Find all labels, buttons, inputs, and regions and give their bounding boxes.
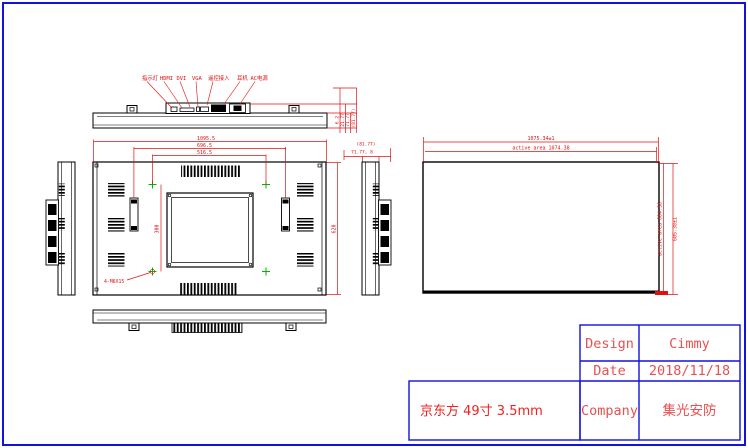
vent-slots [297,253,314,267]
company-value: 集光安防 [663,403,717,419]
top-view [93,103,327,128]
port-label-ac: AC电源 [251,74,269,82]
dim-active-width: active area 1074.38 [512,146,569,152]
mount-tab [289,106,299,114]
design-label: Design [585,336,634,352]
right-side-view [362,162,391,295]
depth-dim-3: 71.77 [345,113,351,127]
dim-active-height: active area 604.38 [658,202,664,256]
port-label-vga: VGA [192,76,202,82]
design-value: Cimmy [669,336,710,352]
port-label-remote: 遥控接入 [208,74,230,82]
vent-slots [297,183,314,197]
depth-dim-1: 6.2 [335,116,341,124]
panel-front-view: 1075.34±1 active area 1074.38 active are… [423,136,679,295]
panel-outline [423,162,659,293]
top-vent-grille [181,166,240,178]
port-label-hdmi: HDMI [160,76,173,82]
vent-slots [108,253,125,267]
port-label-dvi: DVI [177,76,187,82]
bottom-view-body [93,310,326,323]
bottom-vent-grille [172,323,242,333]
port-label-earphone: 耳机 [237,74,248,82]
rear-module [167,193,253,267]
mount-tab [127,106,137,114]
vent-slots [108,218,125,232]
bottom-vent-grille [180,283,238,295]
dim-outline-width: 1075.34±1 [527,136,554,142]
side-total-depth: (81.77) [357,142,376,148]
dim-vesa-span: 516.5 [197,150,212,156]
title-block: Design Cimmy Date 2018/11/18 Company 集光安… [409,325,740,440]
back-view [93,162,326,295]
date-value: 2018/11/18 [649,363,730,379]
depth-dim-4: (81.77) [351,109,357,128]
dim-overall-height: 620 [332,224,338,233]
panel-bottom-bar [423,291,659,294]
date-label: Date [593,363,626,379]
vent-slots [297,218,314,232]
product-title: 京东方 49寸 3.5mm [420,403,543,419]
side-sub-depth: 71.77, 8 [351,150,373,156]
drawing-sheet: 指示灯 HDMI DVI VGA 遥控接入 耳机 AC电源 6.2 21.77 … [0,0,748,448]
dim-outline-height: 605.38±1 [673,217,679,241]
screw-spec-label: 4-M6X15 [104,279,124,285]
company-label: Company [581,403,638,419]
side-view-dimensions: (81.77) 71.77, 8 [344,142,391,163]
mount-tab [286,323,296,331]
left-side-view [46,162,75,295]
dim-overall-width: 1095.5 [197,136,215,142]
dim-bracket-span: 696.5 [197,143,212,149]
control-port [211,105,226,113]
vent-slots [108,183,125,197]
dim-vesa-height: 300 [155,224,161,233]
bottom-view [93,310,326,333]
mount-tab [129,323,139,331]
top-view-body [93,113,327,128]
port-label-indicator: 指示灯 [142,74,159,82]
cad-drawing: 指示灯 HDMI DVI VGA 遥控接入 耳机 AC电源 6.2 21.77 … [0,0,748,448]
